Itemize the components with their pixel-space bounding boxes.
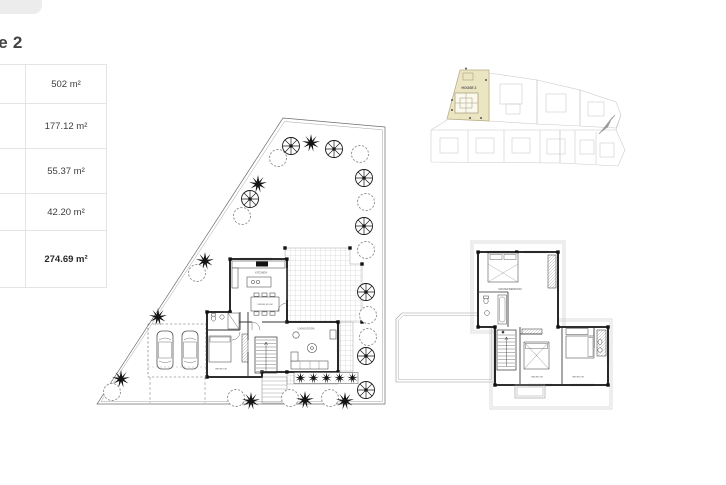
plan-sheet: House 2 Plot Area 502 m² Internal Covere… [0, 0, 726, 485]
bedroom-label: BEDROOM [215, 368, 226, 370]
carport [148, 308, 206, 377]
ground-floor-plan: KITCHEN DINING ROOM LIVING ROOM [97, 118, 385, 410]
bedroom1-label: BEDROOM [531, 377, 542, 379]
kitchen-label: KITCHEN [255, 270, 267, 274]
north-arrow-icon [599, 115, 615, 134]
bedroom-furniture [209, 334, 248, 362]
palm-icon [149, 308, 167, 326]
living-room-label: LIVING ROOM [298, 328, 315, 331]
car-icon [157, 331, 173, 369]
balcony [515, 385, 545, 398]
plans-drawing: HOUSE 2 [0, 0, 726, 485]
car-icon [182, 331, 198, 369]
master-bedroom-label: MASTER BEDROOM [499, 288, 522, 291]
upper-floor-plan: MASTER BEDROOM BEDROOM BEDROOM [396, 241, 612, 409]
highlighted-house-plot: HOUSE 2 [447, 68, 489, 122]
site-plan: HOUSE 2 [431, 68, 625, 167]
dining-room-label: DINING ROOM [257, 304, 272, 306]
house2-label: HOUSE 2 [462, 86, 477, 90]
bedroom2-label: BEDROOM [572, 377, 583, 379]
planter-shrubs [294, 372, 358, 383]
